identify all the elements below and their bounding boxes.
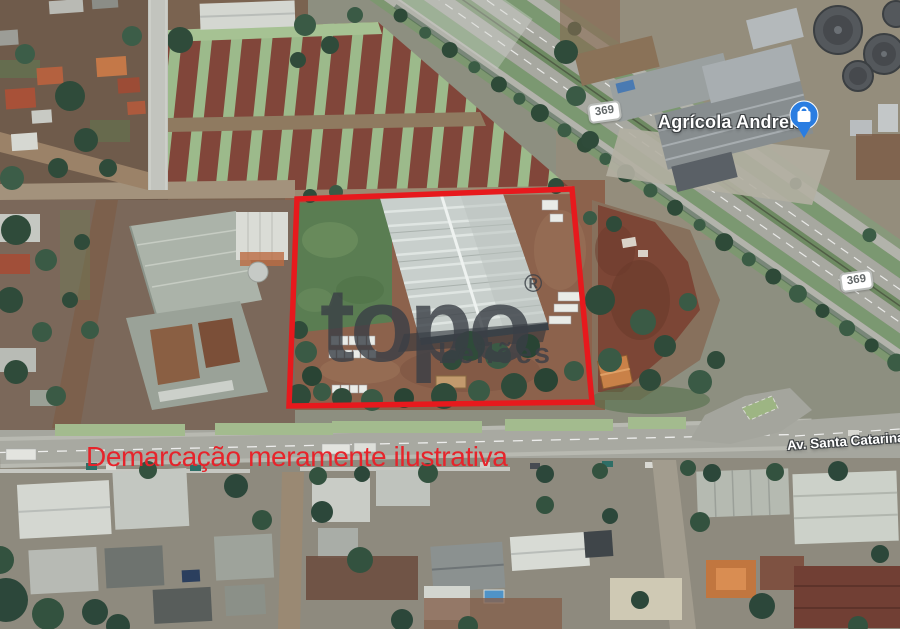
map-pin [786,96,824,147]
place-label: Agrícola Andreis [658,112,805,133]
aerial-scene [0,0,900,629]
illustrative-demarcation-caption: Demarcação meramente ilustrativa [86,441,507,473]
shopping-bag-pin-icon [786,96,824,142]
satellite-map-image: topo ® Leilões Agrícola Andreis 369 369 … [0,0,900,629]
